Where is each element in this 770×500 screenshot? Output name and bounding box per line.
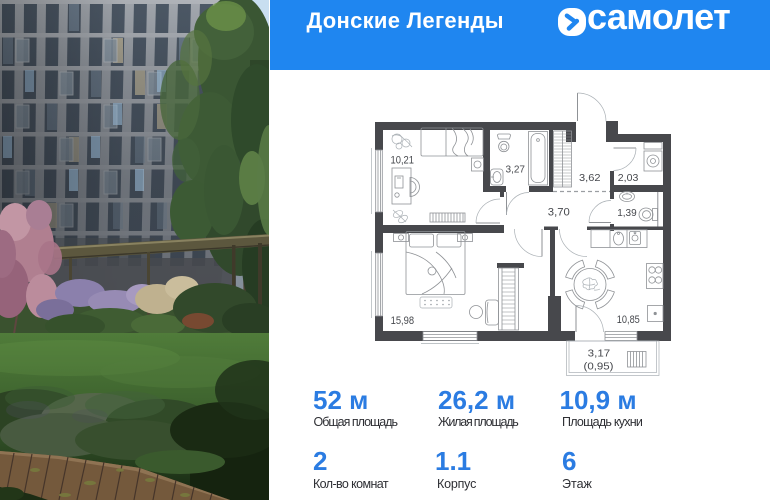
svg-text:3,17: 3,17: [588, 348, 611, 360]
svg-text:10,21: 10,21: [391, 154, 415, 166]
svg-text:3,62: 3,62: [579, 172, 601, 184]
svg-text:2,03: 2,03: [618, 172, 639, 184]
svg-text:10,85: 10,85: [617, 314, 640, 326]
svg-text:(0,95): (0,95): [584, 361, 614, 373]
svg-text:3,27: 3,27: [506, 164, 526, 176]
svg-text:1,39: 1,39: [617, 207, 637, 219]
svg-text:15,98: 15,98: [391, 315, 415, 327]
svg-text:3,70: 3,70: [548, 207, 570, 219]
